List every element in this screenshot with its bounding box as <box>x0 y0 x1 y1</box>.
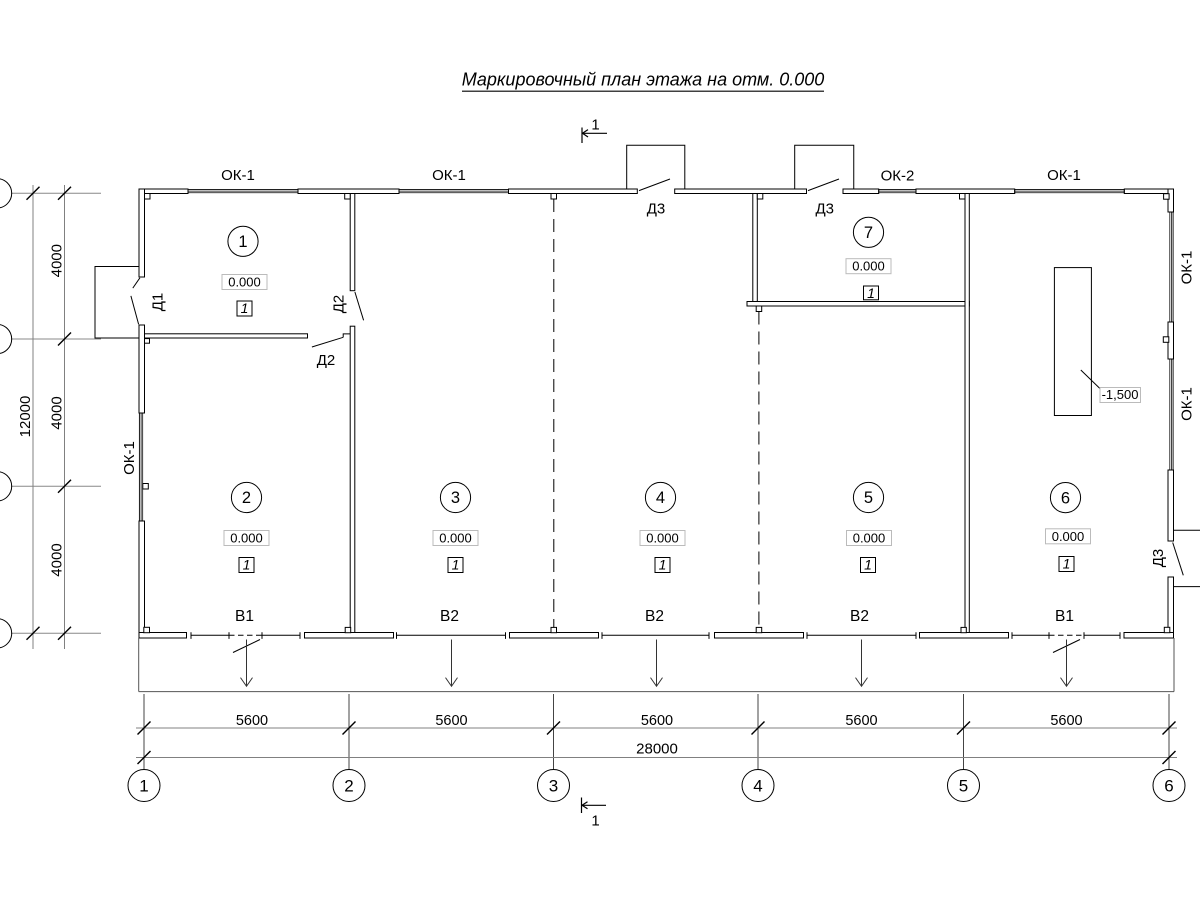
svg-text:3: 3 <box>549 777 558 796</box>
svg-text:1: 1 <box>241 300 249 316</box>
svg-text:12000: 12000 <box>17 396 34 438</box>
svg-text:Д3: Д3 <box>1150 549 1167 568</box>
svg-text:6: 6 <box>1164 777 1173 796</box>
svg-text:Д3: Д3 <box>815 201 834 218</box>
svg-text:28000: 28000 <box>636 741 678 758</box>
svg-text:4: 4 <box>656 489 665 507</box>
svg-text:5600: 5600 <box>1050 713 1082 729</box>
svg-text:1: 1 <box>591 117 599 134</box>
svg-text:В2: В2 <box>440 608 459 625</box>
svg-text:Д2: Д2 <box>317 352 336 369</box>
svg-text:В2: В2 <box>850 608 869 625</box>
svg-text:1: 1 <box>867 285 875 301</box>
svg-text:Д1: Д1 <box>150 293 167 312</box>
svg-text:0.000: 0.000 <box>852 259 885 274</box>
svg-text:4000: 4000 <box>48 396 65 429</box>
svg-text:0.000: 0.000 <box>1052 529 1085 544</box>
svg-text:0.000: 0.000 <box>228 275 261 290</box>
svg-text:-1,500: -1,500 <box>1102 387 1139 402</box>
svg-text:5600: 5600 <box>845 713 877 729</box>
svg-text:ОК-2: ОК-2 <box>881 168 915 185</box>
svg-text:В1: В1 <box>235 608 254 625</box>
svg-text:3: 3 <box>451 489 460 507</box>
svg-text:ОК-1: ОК-1 <box>1179 387 1196 421</box>
svg-text:2: 2 <box>344 777 353 796</box>
svg-text:ОК-1: ОК-1 <box>121 441 138 475</box>
svg-text:Д2: Д2 <box>331 295 348 314</box>
svg-text:4000: 4000 <box>48 543 65 576</box>
svg-text:7: 7 <box>864 224 873 242</box>
svg-text:1: 1 <box>243 557 251 573</box>
svg-text:5600: 5600 <box>236 713 268 729</box>
svg-text:1: 1 <box>238 233 247 251</box>
svg-text:ОК-1: ОК-1 <box>1047 167 1081 184</box>
svg-text:ОК-1: ОК-1 <box>432 167 466 184</box>
svg-text:5: 5 <box>864 489 873 507</box>
svg-text:ОК-1: ОК-1 <box>221 167 255 184</box>
svg-text:0.000: 0.000 <box>230 531 263 546</box>
svg-text:1: 1 <box>864 557 872 573</box>
svg-text:1: 1 <box>452 557 460 573</box>
svg-text:5600: 5600 <box>435 713 467 729</box>
svg-text:5600: 5600 <box>641 713 673 729</box>
svg-text:В2: В2 <box>645 608 664 625</box>
svg-text:Маркировочный план этажа на от: Маркировочный план этажа на отм. 0.000 <box>462 70 825 90</box>
svg-text:4000: 4000 <box>48 244 65 277</box>
svg-text:0.000: 0.000 <box>439 531 472 546</box>
svg-text:Д3: Д3 <box>647 201 666 218</box>
svg-text:0.000: 0.000 <box>646 531 679 546</box>
svg-text:5: 5 <box>959 777 968 796</box>
svg-text:1: 1 <box>1063 556 1071 572</box>
svg-text:2: 2 <box>242 489 251 507</box>
svg-text:1: 1 <box>139 777 148 796</box>
svg-text:0.000: 0.000 <box>853 531 886 546</box>
svg-text:В1: В1 <box>1055 608 1074 625</box>
svg-text:1: 1 <box>659 557 667 573</box>
svg-text:4: 4 <box>753 777 762 796</box>
svg-text:ОК-1: ОК-1 <box>1179 251 1196 285</box>
svg-text:1: 1 <box>591 813 599 830</box>
svg-text:6: 6 <box>1061 489 1070 507</box>
